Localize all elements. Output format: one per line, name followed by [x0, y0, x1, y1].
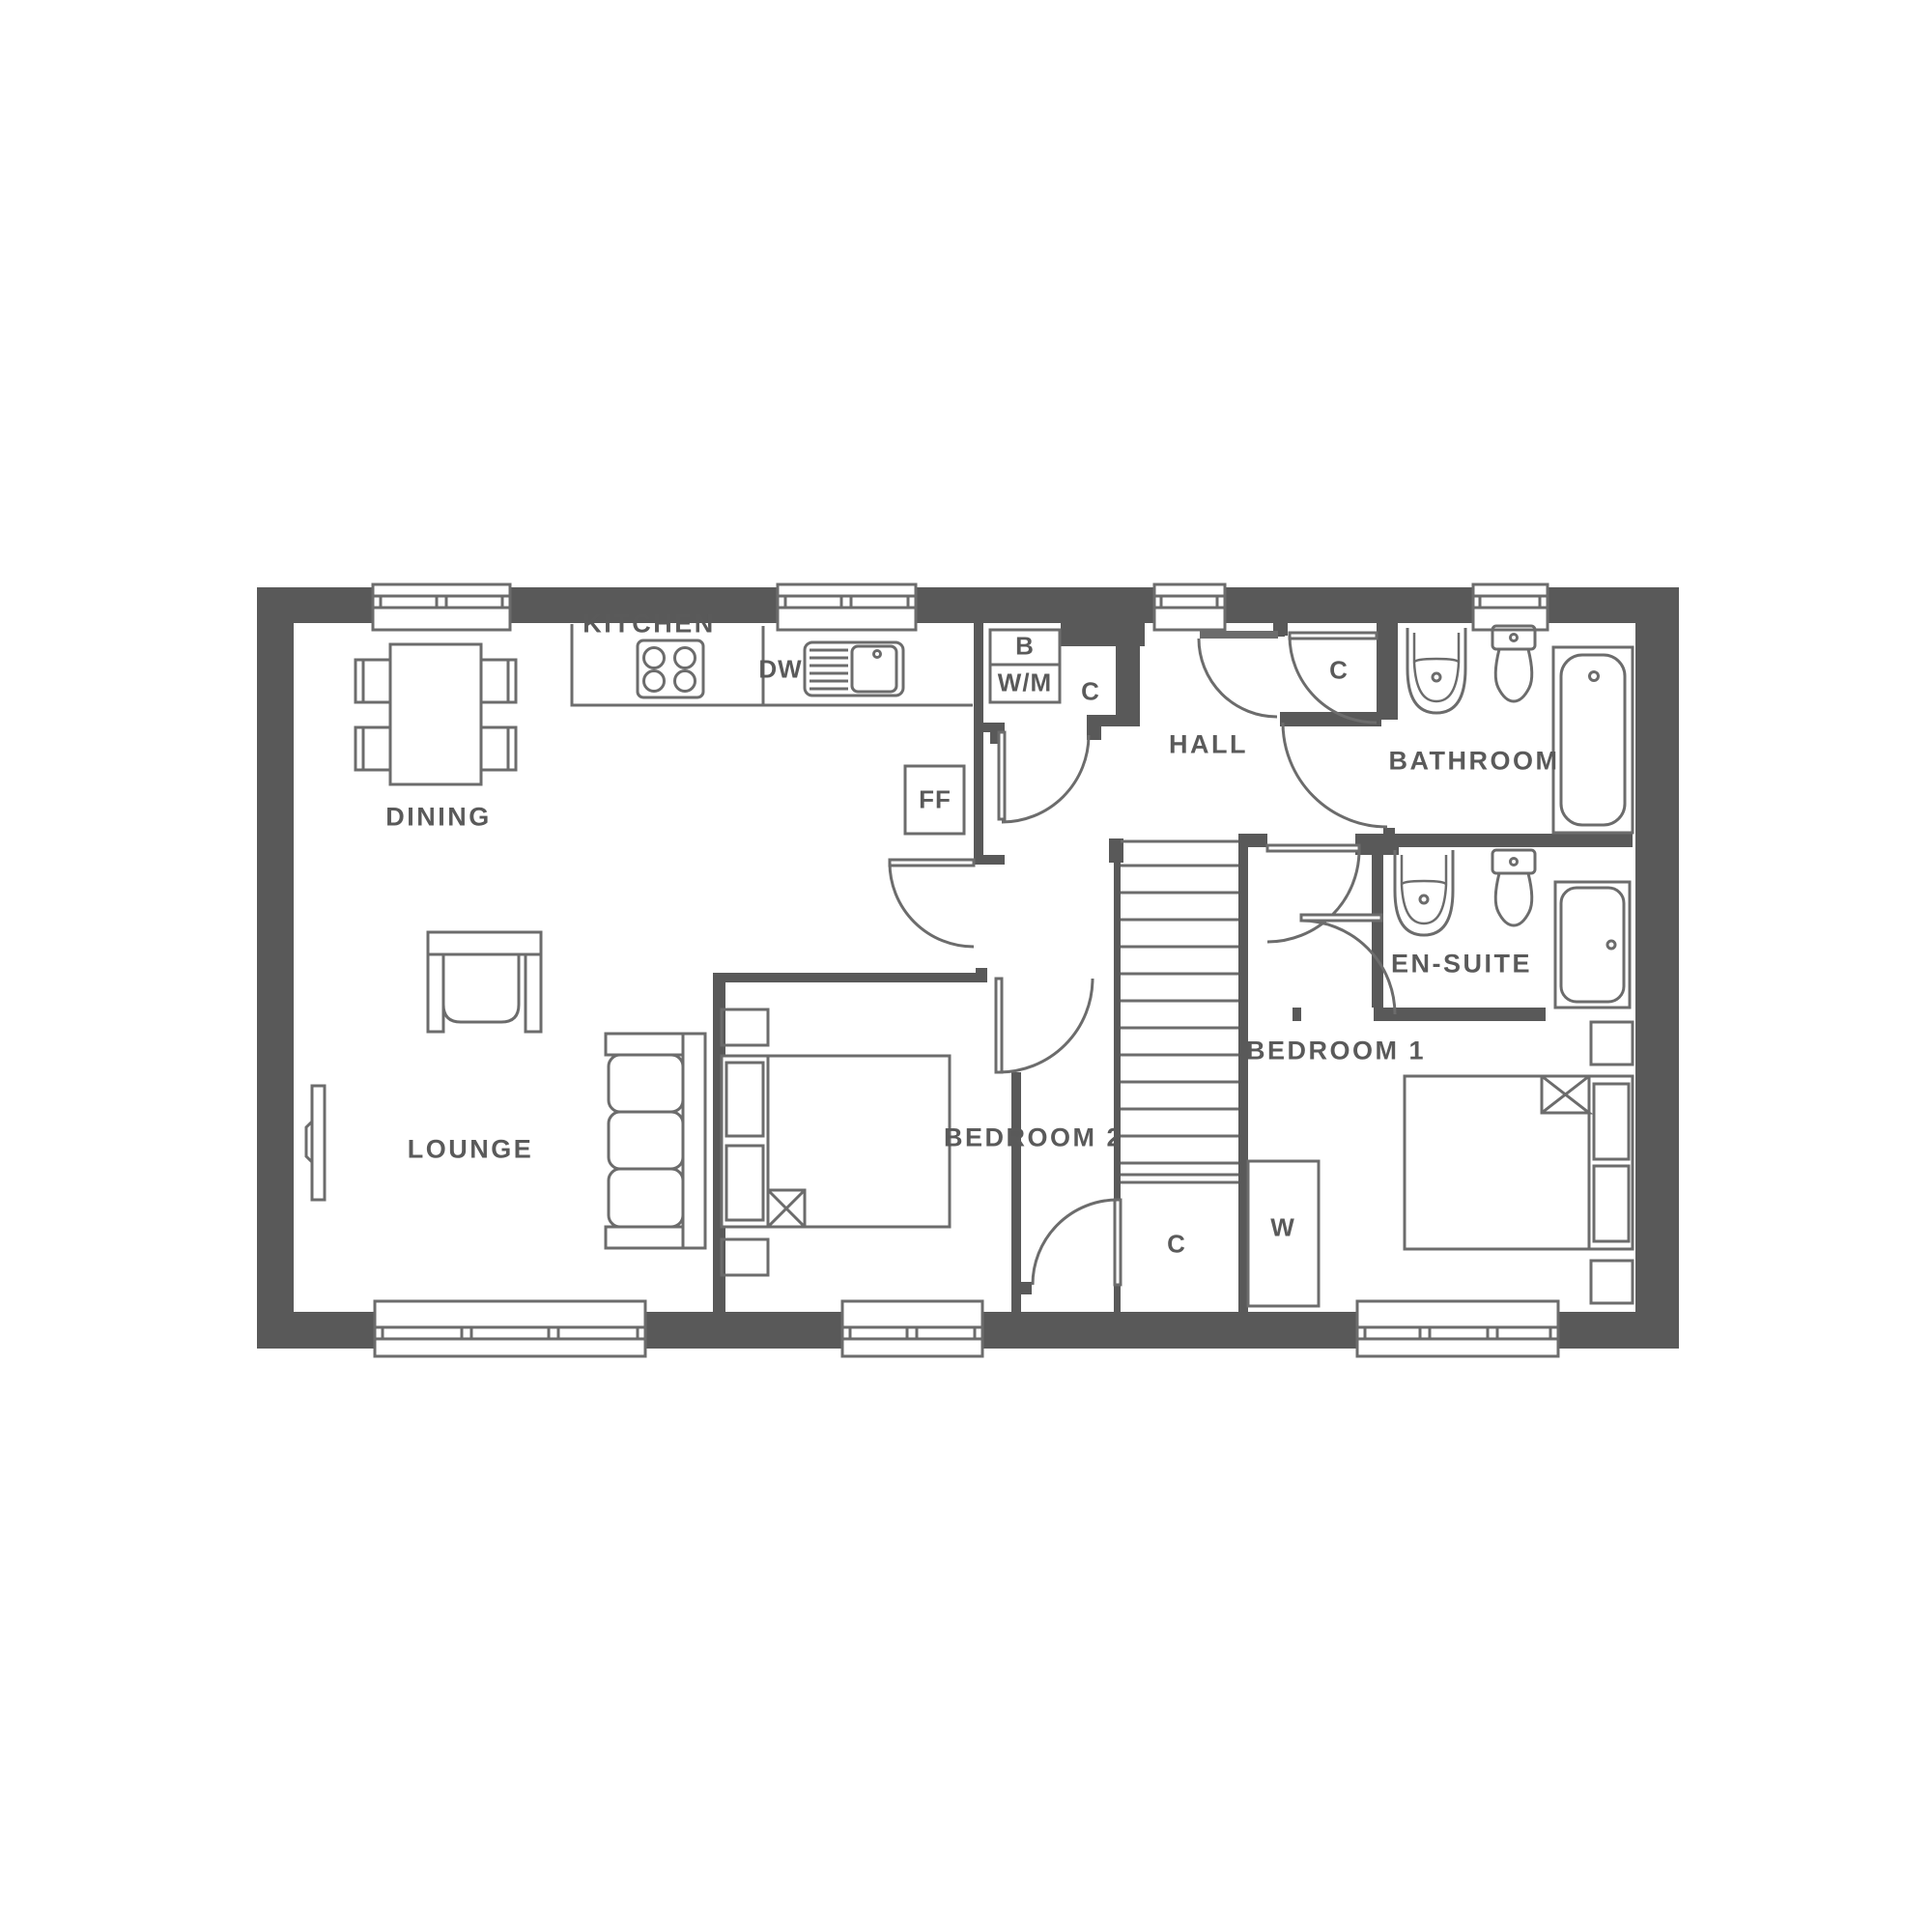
room-label-bedroom1: BEDROOM 1: [1246, 1037, 1426, 1066]
window-bathroom: [1473, 584, 1548, 630]
shower-bath-icon: [1555, 882, 1630, 1008]
wall-bathroom-bottom: [1399, 834, 1633, 847]
wall-hallcupboard-right: [1377, 587, 1398, 720]
room-label-kitchen: KITCHEN: [582, 610, 716, 639]
wall-bedroom2-jamb: [976, 968, 987, 982]
door-utility-cupboard: [999, 732, 1089, 822]
wall-utility-right: [1116, 646, 1140, 726]
hob-icon: [638, 640, 703, 697]
bathroom-fixtures: [1407, 626, 1633, 833]
bedside-table-icon: [722, 1239, 768, 1275]
dining-chair-icon: [355, 660, 390, 702]
double-bed-icon: [1405, 1076, 1633, 1249]
wall-ensuite-left: [1372, 847, 1383, 1008]
floorplan-canvas: DINING KITCHEN LOUNGE HALL BATHROOM EN-S…: [0, 0, 1932, 1932]
dining-chair-icon: [481, 727, 516, 770]
label-fridge-freezer: FF: [919, 785, 952, 815]
label-dishwasher: DW: [758, 655, 802, 685]
wall-bedroom2-right-jamb: [1021, 1282, 1032, 1294]
room-label-bathroom: BATHROOM: [1389, 747, 1560, 777]
room-label-lounge: LOUNGE: [408, 1135, 534, 1165]
wall-left: [257, 587, 294, 1349]
label-wardrobe: W: [1270, 1213, 1295, 1243]
window-kitchen: [778, 584, 916, 630]
room-label-hall: HALL: [1169, 730, 1248, 760]
wall-utility-bottom-right: [1087, 715, 1116, 726]
room-label-bedroom2: BEDROOM 2: [944, 1123, 1123, 1153]
label-boiler: B: [1015, 632, 1035, 662]
wall-jamb-kitchen-bottom: [983, 855, 1005, 865]
front-door: [1199, 623, 1285, 717]
armchair-icon: [428, 932, 541, 1032]
floorplan-drawing: [0, 0, 1932, 1932]
wall-bedroom2-right: [1011, 1072, 1021, 1312]
window-bedroom1: [1357, 1301, 1558, 1356]
bathroom-toilet-icon: [1492, 626, 1535, 701]
wall-ensuite-hinge-stub: [1293, 1008, 1301, 1021]
front-door-swing-arc: [1199, 639, 1277, 717]
wall-stairs-left-bottom: [1114, 1285, 1121, 1312]
room-label-ensuite: EN-SUITE: [1391, 950, 1532, 980]
wall-hallcupboard-bottom: [1280, 712, 1381, 726]
window-hall: [1154, 584, 1225, 630]
tv-icon: [306, 1086, 325, 1200]
bedside-table-icon: [722, 1009, 768, 1045]
label-cupboard-utility: C: [1081, 677, 1100, 707]
room-label-dining: DINING: [385, 803, 492, 833]
ensuite-fixtures: [1395, 850, 1630, 1008]
front-door-leaf: [1200, 631, 1278, 639]
label-washing-machine: W/M: [998, 668, 1052, 698]
lounge-furniture: [306, 932, 705, 1248]
dining-chair-icon: [355, 727, 390, 770]
dining-table-icon: [390, 644, 481, 784]
bathroom-basin-icon: [1407, 628, 1465, 713]
dining-chair-icon: [481, 660, 516, 702]
bedroom2-furniture: [722, 1009, 950, 1275]
double-bed-icon: [722, 1056, 950, 1227]
wall-bedroom2-top: [713, 973, 987, 982]
bedside-table-icon: [1591, 1022, 1633, 1065]
door-bedroom1: [1267, 845, 1359, 942]
dining-furniture: [355, 644, 516, 784]
door-bathroom: [1283, 723, 1387, 827]
wall-ensuite-bottom: [1374, 1008, 1546, 1021]
label-cupboard-hall: C: [1329, 656, 1349, 686]
wall-bathroom-jamb: [1383, 828, 1395, 836]
window-dining: [373, 584, 510, 630]
sofa-icon: [606, 1034, 705, 1248]
sink-icon: [805, 642, 903, 696]
wall-kitchen-hall: [974, 623, 983, 865]
window-lounge: [375, 1301, 645, 1356]
wall-right: [1635, 587, 1679, 1349]
staircase: [1121, 841, 1238, 1182]
bath-icon: [1553, 647, 1633, 833]
ensuite-basin-icon: [1395, 850, 1453, 935]
window-bedroom2: [842, 1301, 982, 1356]
door-kitchen-opening: [890, 860, 974, 947]
bedside-table-icon: [1591, 1261, 1633, 1303]
wall-utility-top-chunk: [1061, 623, 1145, 646]
ensuite-toilet-icon: [1492, 850, 1535, 925]
label-cupboard-understairs: C: [1167, 1230, 1186, 1260]
door-bedroom2: [996, 979, 1093, 1072]
door-understairs-cupboard: [1033, 1200, 1121, 1285]
